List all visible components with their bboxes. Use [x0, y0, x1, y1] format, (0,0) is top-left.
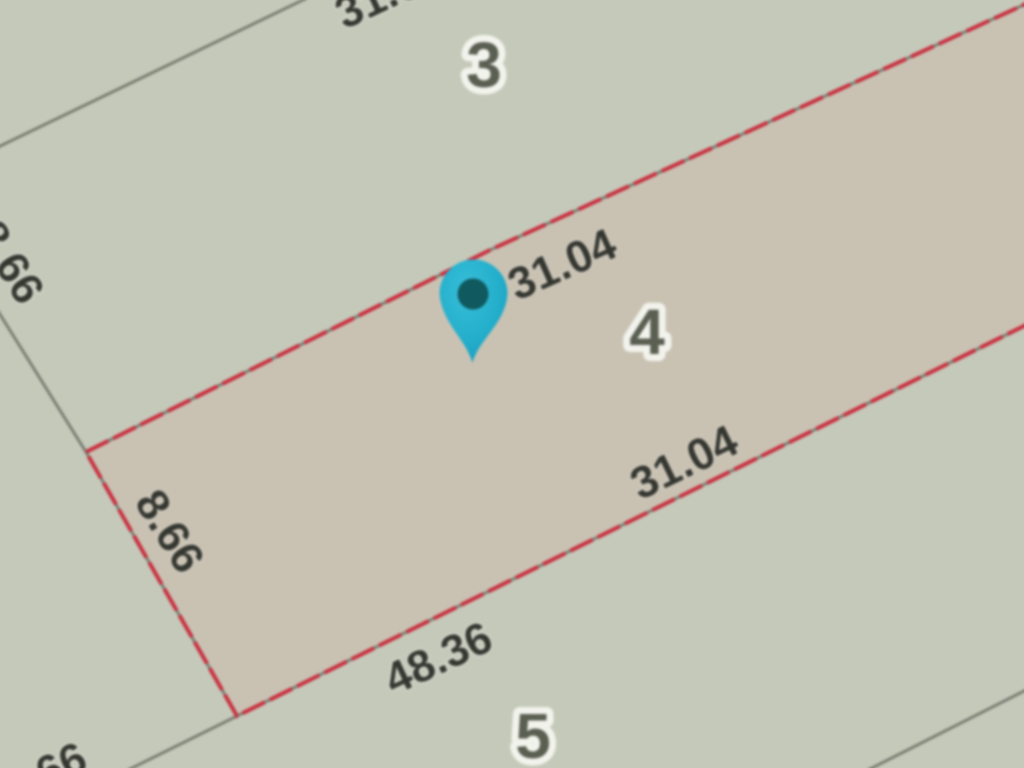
svg-text:3: 3 — [466, 29, 502, 101]
svg-text:4: 4 — [629, 296, 665, 368]
svg-text:5: 5 — [515, 700, 551, 768]
